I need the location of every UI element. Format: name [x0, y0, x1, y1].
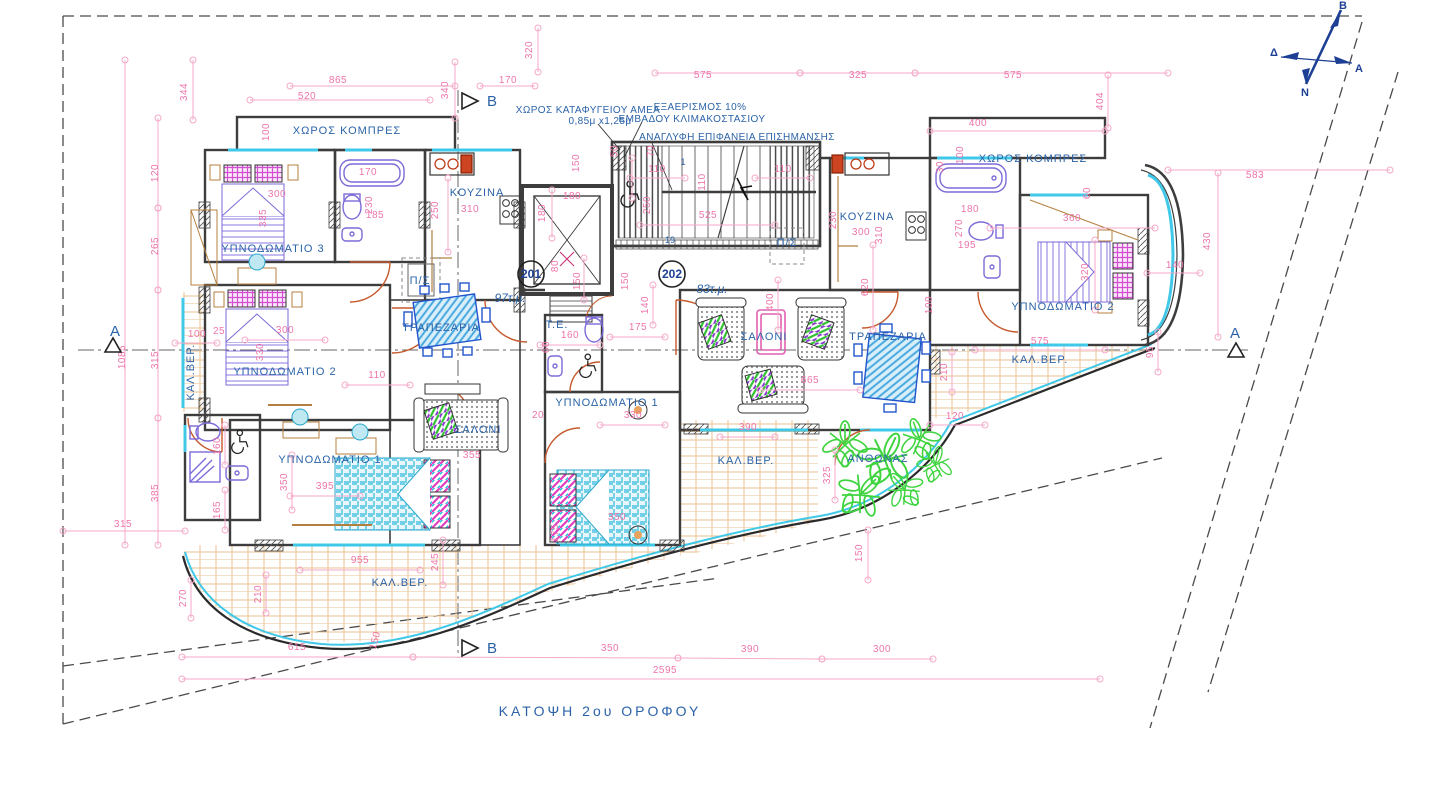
dimension-label: 350	[608, 512, 626, 523]
room-label: ΥΠΝΟΔΩΜΑΤΙΟ 2	[1011, 301, 1114, 313]
dimension-label: 300	[268, 189, 286, 200]
dimension-label: 95	[1145, 346, 1156, 358]
dimension-label: 175	[550, 524, 561, 542]
bathtub-right	[936, 164, 1006, 192]
dimension-label: 25	[213, 326, 225, 337]
vent-note-line1: ΕΞΑΕΡΙΣΜΟΣ 10%	[654, 102, 747, 113]
dimension-label: 330	[624, 410, 642, 421]
staircase	[612, 142, 820, 249]
dimension-label: 100	[955, 146, 966, 164]
dimension-label: 80	[550, 260, 561, 272]
dimension-label: 185	[366, 210, 384, 221]
room-label: ΤΡΑΠΕΖΑΡΙΑ	[849, 331, 927, 343]
dimension-label: 20	[532, 410, 544, 421]
dimension-label: 50	[609, 145, 620, 157]
floor-plan-drawing: 3448655203401703205753255754044005834301…	[0, 0, 1444, 788]
dimension-label: 390	[739, 422, 757, 433]
dimension-label: 620	[860, 278, 871, 296]
dimension-label: 250	[430, 201, 441, 219]
dimension-label: 165	[212, 501, 223, 519]
dimension-label: 230	[828, 211, 839, 229]
dimension-label: 430	[1202, 232, 1213, 250]
room-label: ΚΑΛ.ΒΕΡ.	[185, 344, 197, 401]
room-label: ΧΩΡΟΣ ΚΟΜΠΡΕΣ	[979, 153, 1087, 165]
dimension-label: 120	[150, 164, 161, 182]
dimension-label: 265	[150, 237, 161, 255]
dimension-label: 390	[741, 644, 759, 655]
room-label: ΣΑΛΟΝΙ	[741, 331, 788, 343]
dimension-label: 175	[629, 322, 647, 333]
annotations: ΧΩΡΟΣ ΚΑΤΑΦΥΓΕΙΟΥ ΑΜΕΑ 0,85μ x1,25μ ΕΞΑΕ…	[516, 102, 835, 143]
dimension-label: 250	[642, 196, 653, 214]
dimension-label: 385	[150, 484, 161, 502]
elevator	[522, 186, 612, 322]
dimension-label: 583	[1246, 170, 1264, 181]
room-label: ΚΟΥΖΙΝΑ	[450, 187, 505, 199]
dimension-label: 300	[873, 644, 891, 655]
room-label: ΑΝΘΩΝΑΣ	[847, 453, 908, 465]
dimension-label: 195	[958, 240, 976, 251]
section-b-bottom-triangle	[462, 640, 478, 656]
room-label: ΚΑΛ.ΒΕΡ.	[372, 577, 429, 589]
dimension-label: 575	[694, 70, 712, 81]
sofa-right-1	[696, 298, 746, 360]
relief-note: ΑΝΑΓΛΥΦΗ ΕΠΙΦΑΝΕΙΑ ΕΠΙΣΗΜΑΝΣΗΣ	[639, 132, 835, 143]
dimension-label: 140	[1166, 260, 1184, 271]
dimension-label: 300	[276, 325, 294, 336]
apartment-number: 202	[662, 267, 682, 281]
north-label-n: Β	[1339, 0, 1347, 12]
room-label: ΚΑΛ.ΒΕΡ.	[1012, 354, 1069, 366]
dimension-label: 110	[697, 173, 708, 190]
toilet-left	[343, 194, 361, 219]
dimension-label: 330	[255, 343, 266, 361]
dimension-label: 404	[1095, 92, 1106, 110]
section-b-top-label: B	[487, 93, 497, 110]
dimension-label: 575	[1031, 336, 1049, 347]
room-label: ΚΑΛ.ΒΕΡ.	[718, 455, 775, 467]
dimension-label: 100	[261, 123, 272, 141]
dimension-label: 210	[939, 363, 950, 381]
dimension-label: 60	[541, 341, 552, 353]
room-label: Τ.Ε.	[546, 319, 569, 331]
dimension-line	[678, 658, 822, 659]
sofa-right-2	[796, 298, 846, 360]
dimension-label: 315	[150, 351, 161, 369]
room-label: Π/Σ	[777, 237, 798, 249]
dimension-label: 315	[114, 519, 132, 530]
toilet-te	[585, 317, 603, 342]
room-label: ΚΟΥΖΙΝΑ	[840, 211, 895, 223]
dimension-label: 575	[1004, 70, 1022, 81]
kitchen-left-sink	[430, 153, 474, 175]
dimension-label: 355	[463, 450, 481, 461]
dimension-label: 400	[765, 293, 776, 311]
dimension-label: 170	[499, 75, 517, 86]
dimension-label: 325	[822, 466, 833, 484]
dimension-label: 245	[430, 553, 441, 571]
dimension-label: 60	[1082, 187, 1093, 199]
dimension-label: 2595	[653, 665, 677, 676]
room-label: ΥΠΝΟΔΩΜΑΤΙΟ 3	[221, 243, 324, 255]
stair-tread-number: 19	[665, 235, 675, 245]
dimension-label: 180	[563, 191, 581, 202]
room-label: ΣΑΛΟΝΙ	[455, 424, 502, 436]
dimension-label: 665	[801, 375, 819, 386]
dimension-label: 140	[640, 296, 651, 314]
dimension-label: 310	[874, 226, 885, 244]
dimension-label: 180	[537, 204, 548, 222]
room-label: ΧΩΡΟΣ ΚΟΜΠΡΕΣ	[293, 125, 401, 137]
room-label: ΥΠΝΟΔΩΜΑΤΙΟ 1	[555, 397, 658, 409]
dimension-label: 70	[646, 145, 657, 157]
room-label: ΤΡΑΠΕΖΑΡΙΑ	[402, 322, 480, 334]
sink-right	[984, 256, 1000, 278]
dimension-label: 400	[969, 118, 987, 129]
room-label: Π/Σ	[410, 275, 431, 287]
dimension-label: 160	[212, 437, 223, 455]
dimension-label: 270	[954, 219, 965, 237]
vent-note-line2: ΕΜΒΑΔΟΥ ΚΛΙΜΑΚΟΣΤΑΣΙΟΥ	[619, 114, 766, 125]
north-label-w: Δ	[1270, 47, 1278, 59]
dimension-label: 520	[298, 91, 316, 102]
dimension-label: 110	[648, 164, 665, 175]
dimension-label: 310	[461, 204, 479, 215]
room-label: ΥΠΝΟΔΩΜΑΤΙΟ 2	[233, 366, 336, 378]
apartment-area: 83τ.μ.	[696, 282, 727, 296]
dimension-label: 180	[961, 204, 979, 215]
dimension-label: 110	[368, 370, 385, 381]
section-a-right-label: A	[1230, 325, 1240, 342]
bed-bedroom1-left	[335, 458, 450, 530]
dimension-label: 320	[1080, 263, 1091, 281]
north-label-s: Ν	[1301, 87, 1309, 99]
floor-plan-page: 3448655203401703205753255754044005834301…	[0, 0, 1444, 788]
bed-bedroom2-right	[1030, 200, 1138, 313]
shower-bottom-left	[190, 452, 220, 482]
toilet-right	[969, 222, 1003, 240]
dimension-label: 525	[699, 210, 717, 221]
kitchen-right-sink	[832, 153, 889, 175]
north-arrow: Β Δ Α Ν	[1270, 0, 1363, 99]
dimension-label: 395	[316, 481, 334, 492]
dimension-label: 160	[561, 330, 579, 341]
section-b-bottom-label: B	[487, 640, 497, 657]
dimension-label: 300	[852, 227, 870, 238]
sink-left	[342, 228, 362, 241]
dimension-label: 120	[946, 411, 964, 422]
dimension-label: 955	[351, 555, 369, 566]
wheelchair-te-icon	[580, 354, 596, 377]
dimension-label: 335	[258, 209, 269, 227]
dimension-label: 320	[524, 41, 535, 59]
dimension-label: 100	[188, 329, 206, 340]
dimension-label: 100	[924, 296, 935, 314]
dimension-label: 150	[572, 272, 583, 290]
dimension-label: 865	[329, 75, 347, 86]
dimension-label: 340	[440, 81, 451, 99]
section-b-top-triangle	[462, 93, 478, 109]
dimension-label: 30	[935, 161, 946, 173]
dimension-label: 270	[178, 589, 189, 607]
dimension-label: 344	[179, 83, 190, 101]
dimension-label: 170	[359, 167, 377, 178]
sofa-left	[414, 384, 508, 452]
dimension-label: 350	[601, 643, 619, 654]
kitchen-right-stove	[906, 212, 926, 240]
apartment-number: 201	[521, 267, 541, 281]
wheelchair-bath-icon	[232, 430, 248, 453]
dimension-label: 615	[288, 642, 306, 653]
dimension-label: 150	[571, 154, 582, 172]
dimension-label: 210	[253, 585, 264, 603]
stair-tread-number: 1	[680, 157, 685, 167]
dimension-label: 150	[854, 544, 865, 562]
room-label: ΥΠΝΟΔΩΜΑΤΙΟ 1	[278, 454, 381, 466]
section-a-left-label: A	[110, 323, 120, 340]
drawing-title: ΚΑΤΟΨΗ 2ου ΟΡΟΦΟΥ	[499, 703, 702, 719]
north-label-e: Α	[1355, 63, 1363, 75]
dimension-label: 360	[1063, 213, 1081, 224]
dimension-label: 350	[279, 473, 290, 491]
sink-te	[548, 356, 562, 376]
dimension-label: 110	[774, 164, 791, 175]
dimension-label: 325	[849, 70, 867, 81]
dimension-label: 150	[620, 272, 631, 290]
dimension-line	[413, 657, 678, 658]
apartment-area: 97τ.μ.	[494, 291, 525, 305]
